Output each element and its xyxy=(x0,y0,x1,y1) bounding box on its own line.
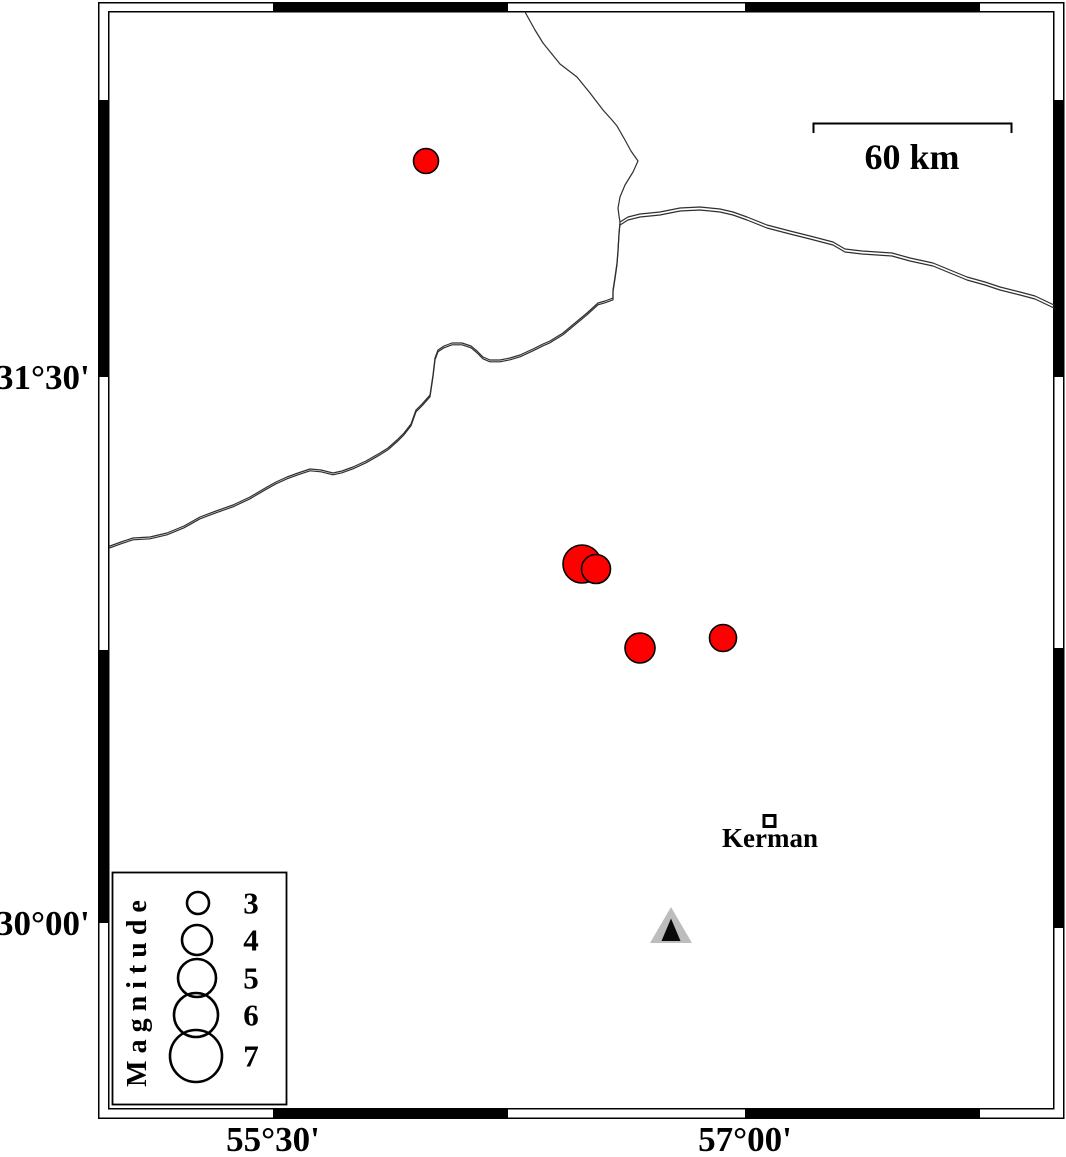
border-segment xyxy=(1054,100,1064,377)
earthquake-marker xyxy=(582,555,611,584)
seismicity-map-figure: 34567 31°30' 30°00' 55°30' 57°00' 60 km … xyxy=(0,0,1066,1157)
axis-label-latitude-2: 30°00' xyxy=(0,906,88,941)
legend-magnitude-label: 4 xyxy=(243,923,259,958)
border-segment xyxy=(99,100,109,377)
legend-magnitude-label: 6 xyxy=(243,998,259,1033)
earthquake-marker xyxy=(710,625,737,652)
axis-label-latitude-1: 31°30' xyxy=(0,360,88,395)
border-segment xyxy=(745,1109,980,1119)
scale-bar xyxy=(814,124,1012,134)
earthquake-marker xyxy=(625,633,655,663)
river-line-east-double xyxy=(620,210,1054,308)
border-segment xyxy=(99,650,109,923)
legend-magnitude-label: 5 xyxy=(243,961,259,996)
earthquake-marker xyxy=(414,149,439,174)
river-line-southwest xyxy=(110,222,620,546)
river-line-southwest-double xyxy=(110,224,620,548)
earthquake-layer xyxy=(414,149,737,664)
axis-label-longitude-2: 57°00' xyxy=(675,1122,815,1157)
axis-label-longitude-1: 55°30' xyxy=(203,1122,343,1157)
border-segment xyxy=(1054,648,1064,928)
city-label-kerman: Kerman xyxy=(695,825,845,852)
legend-title: Magnitude xyxy=(124,880,152,1100)
legend-magnitude-label: 3 xyxy=(243,886,259,921)
border-segment xyxy=(273,3,508,12)
river-line-east xyxy=(620,207,1054,305)
scale-bar-label: 60 km xyxy=(832,139,992,175)
river-line-north xyxy=(525,12,638,222)
river-lines xyxy=(110,12,1054,548)
border-segment xyxy=(745,3,980,12)
legend-magnitude-label: 7 xyxy=(243,1039,259,1074)
border-segment xyxy=(273,1109,508,1119)
